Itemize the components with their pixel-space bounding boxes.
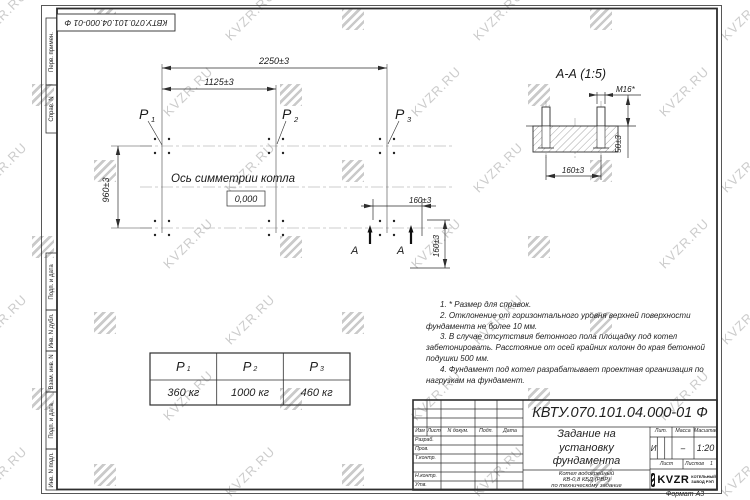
note-2: 2. Отклонение от горизонтального уровня …	[426, 311, 712, 333]
note-3: 3. В случае отсутствия бетонного пола пл…	[426, 332, 712, 364]
p1-sub: 1	[187, 366, 191, 373]
sig-row-prov: Пров.	[413, 445, 443, 454]
sig-row-razrab: Разраб.	[413, 436, 443, 445]
text-overlay: Перв. примен. Справ. N Подп. и дата Инв.…	[0, 0, 750, 500]
load-value-p3: 460 кг	[283, 380, 350, 405]
col-header-izm: Изм	[413, 427, 427, 436]
col-header-data: Дата	[497, 427, 523, 436]
sig-row-tkontr: Т.контр.	[413, 454, 443, 463]
format-label: Формат А3	[630, 491, 740, 498]
mass-label: Масса	[672, 427, 694, 436]
margin-field-podp-data-2: Подп. и дата	[49, 403, 55, 438]
company-line-2: ЗАВОД РЭП	[691, 480, 716, 485]
lit-value: И	[650, 437, 657, 459]
title-line-1: Задание на	[523, 428, 650, 442]
p3-name: P	[309, 359, 318, 374]
sheet-label: Лист	[650, 460, 683, 469]
col-header-ndokum: N докум.	[441, 427, 475, 436]
load-value-p1: 360 кг	[150, 380, 217, 405]
scale-value: 1:20	[694, 437, 717, 459]
col-header-list: Лист	[427, 427, 441, 436]
title-block-name: Задание на установку фундамента	[523, 428, 650, 469]
mass-value: –	[672, 437, 694, 459]
note-4: 4. Фундамент под котел разрабатывает про…	[426, 365, 712, 387]
p2-name: P	[243, 359, 252, 374]
note-1: 1. * Размер для справок.	[426, 300, 712, 311]
sig-row-utv: Утв.	[413, 481, 443, 490]
product-line-3: по техническому задание	[523, 483, 650, 489]
title-block-product: Котел водогрейный КВ-0,8 КБД (РВР) по те…	[523, 471, 650, 490]
kvzr-logo-text: KVZR	[657, 474, 689, 486]
notes-block: 1. * Размер для справок. 2. Отклонение о…	[426, 300, 712, 386]
load-table-header-p3: P 3	[283, 353, 350, 380]
p3-sub: 3	[320, 366, 324, 373]
margin-field-inv-podl: Инв. N подл.	[49, 452, 55, 487]
title-line-3: фундамента	[523, 455, 650, 469]
scale-label: Масштаб	[694, 427, 717, 436]
margin-field-perv-primen: Перв. примен.	[49, 32, 55, 72]
lit-label: Лит.	[650, 427, 672, 436]
margin-field-inv-dubl: Инв. N дубл.	[49, 313, 55, 348]
sheets-value: 1	[706, 460, 717, 469]
company-line-1: КОТЕЛЬНЫЙ	[691, 475, 716, 480]
load-table-header-p2: P 2	[217, 353, 284, 380]
p2-sub: 2	[253, 366, 257, 373]
margin-field-podp-data-1: Подп. и дата	[49, 264, 55, 299]
drawing-sheet: KVZR.RUKVZR.RUKVZR.RUKVZR.RUKVZR.RUKVZR.…	[0, 0, 750, 500]
kvzr-logo-icon	[651, 473, 655, 487]
col-header-podp: Подп.	[475, 427, 497, 436]
load-table-header-p1: P 1	[150, 353, 217, 380]
margin-field-vzam-inv: Взам. инв. N	[49, 354, 55, 389]
title-block-doc-number: КВТУ.070.101.04.000-01 Ф	[523, 400, 717, 427]
company-name: КОТЕЛЬНЫЙ ЗАВОД РЭП	[691, 475, 716, 484]
corner-stamp-doc-number: КВТУ.070.101.04.000-01 Ф	[57, 14, 175, 31]
sig-row-nkontr: Н.контр.	[413, 472, 443, 481]
p1-name: P	[176, 359, 185, 374]
sheets-label: Листов	[683, 460, 706, 469]
title-line-2: установку	[523, 442, 650, 456]
load-value-p2: 1000 кг	[217, 380, 284, 405]
company-logo: KVZR КОТЕЛЬНЫЙ ЗАВОД РЭП	[651, 470, 716, 489]
margin-field-sprav-n: Справ. N	[49, 96, 55, 121]
